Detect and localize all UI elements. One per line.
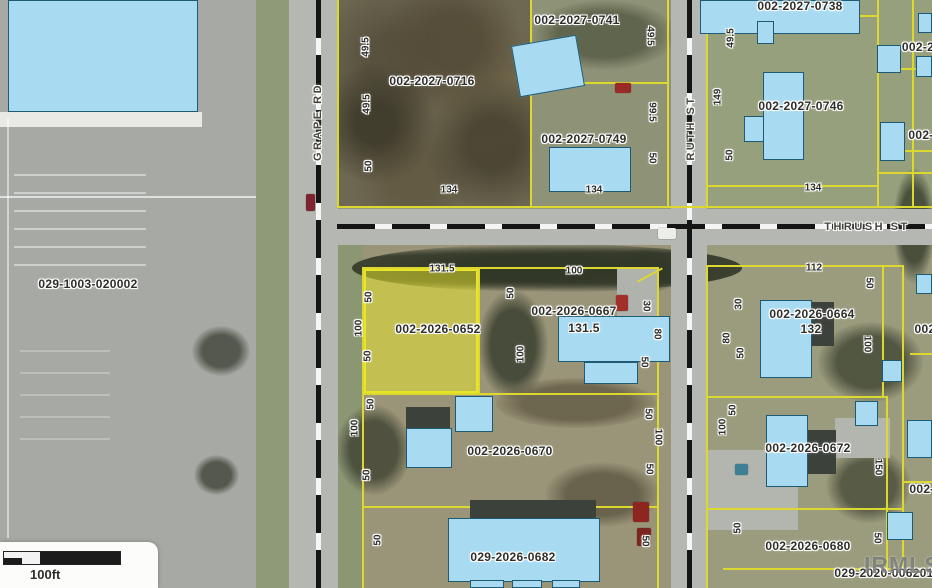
dimension-label: 50 [373, 534, 384, 545]
dimension-label: 50 [644, 463, 655, 474]
dimension-label: 49.5 [726, 28, 737, 47]
dimension-label: 50 [864, 277, 875, 288]
dimension-label: 100 [862, 336, 873, 353]
dimension-label: 50 [366, 398, 377, 409]
dimension-label: 49.5 [645, 26, 656, 45]
parcel-label[interactable]: 002-2027-0738 [757, 0, 842, 13]
tree-texture [336, 405, 411, 495]
vehicle [616, 295, 628, 311]
parcel-boundary-line [706, 396, 886, 398]
parcel-label[interactable]: 002-2026-0652 [395, 322, 480, 336]
street-label-thrush-st: THRUSH ST [824, 221, 909, 233]
building-footprint [877, 45, 901, 73]
building-footprint [916, 56, 932, 77]
dimension-label: 80 [652, 328, 663, 339]
parcel-label[interactable]: 131.5 [568, 321, 600, 335]
dimension-label: 50 [725, 149, 736, 160]
sidewalk-strip [0, 112, 202, 127]
tree-texture [496, 378, 656, 428]
parcel-label[interactable]: 002-2026-0680 [765, 539, 850, 553]
parcel-label[interactable]: 132 [801, 322, 822, 336]
dimension-label: 100 [354, 320, 365, 337]
dimension-label: 134 [586, 185, 603, 196]
building-footprint [763, 72, 804, 160]
dimension-label: 150 [873, 459, 884, 476]
parcel-label[interactable]: 002-2026-0667 [531, 304, 616, 318]
dimension-label: 30 [734, 298, 745, 309]
dimension-label: 100 [516, 346, 527, 363]
parcel-boundary-line [910, 353, 932, 355]
building-footprint [8, 0, 198, 112]
building-footprint [406, 428, 452, 468]
parcel-label[interactable]: 002-2026-0670 [467, 444, 552, 458]
parcel-label[interactable]: 002- [909, 482, 932, 496]
building-footprint [470, 580, 504, 588]
dimension-label: 50 [364, 160, 375, 171]
scale-label: 100ft [30, 567, 60, 582]
street-label-ruth-st: RUTH ST [685, 95, 697, 160]
parking-stripes-2 [20, 330, 110, 460]
dimension-label: 50 [736, 347, 747, 358]
building-footprint [552, 580, 580, 588]
dimension-label: 80 [722, 332, 733, 343]
parcel-label[interactable]: 002 [915, 322, 932, 336]
gis-parcel-map-canvas[interactable]: 100ft IRMLS 002-2027-0741002-2027-071600… [0, 0, 932, 588]
parcel-boundary-line [912, 0, 914, 208]
building-footprint [757, 21, 774, 44]
white-boundary-v [7, 118, 9, 538]
parcel-label[interactable]: 002-2026-0672 [765, 441, 850, 455]
parcel-boundary-line [362, 393, 658, 395]
dimension-label: 50 [728, 404, 739, 415]
vehicle [633, 502, 649, 522]
dimension-label: 50 [733, 522, 744, 533]
parcel-label[interactable]: 029-1003-020002 [38, 277, 137, 291]
dimension-label: 99.5 [647, 102, 658, 121]
parcel-boundary-line [337, 206, 932, 208]
building-footprint [887, 512, 913, 540]
tree-on-parking [192, 326, 250, 376]
dimension-label: 50 [872, 532, 883, 543]
dimension-label: 50 [506, 287, 517, 298]
dimension-label: 50 [364, 291, 375, 302]
parcel-label[interactable]: 002-2027-0716 [389, 74, 474, 88]
building-footprint [455, 396, 493, 432]
building-roof-dark [470, 500, 596, 518]
parcel-label[interactable]: 002-2027-0741 [534, 13, 619, 27]
parcel-label[interactable]: 002-2 [902, 40, 932, 54]
parcel-boundary-line [877, 172, 932, 174]
building-roof-dark [406, 407, 450, 429]
dimension-label: 131.5 [429, 264, 454, 275]
dimension-label: 50 [640, 535, 651, 546]
building-footprint [918, 13, 932, 33]
dimension-label: 50 [639, 356, 650, 367]
dimension-label: 30 [641, 300, 652, 311]
vehicle [306, 194, 315, 211]
parcel-label[interactable]: 002-2026-0664 [769, 307, 854, 321]
parcel-label[interactable]: 002-2027-0746 [758, 99, 843, 113]
vehicle [658, 228, 676, 239]
ruth-st-centerline [687, 0, 692, 588]
tree-on-parking [194, 455, 239, 495]
dimension-label: 50 [647, 152, 658, 163]
building-footprint [907, 420, 932, 458]
scale-panel: 100ft [0, 542, 158, 588]
dimension-label: 100 [350, 420, 361, 437]
dimension-label: 50 [643, 408, 654, 419]
dimension-label: 100 [566, 266, 583, 277]
parcel-boundary-line [530, 0, 532, 208]
dimension-label: 134 [441, 185, 458, 196]
parcel-boundary-line [706, 267, 708, 588]
white-boundary-h [0, 196, 294, 198]
parcel-boundary-line [706, 185, 877, 187]
dimension-label: 49.5 [362, 94, 373, 113]
building-footprint [855, 401, 878, 426]
parcel-label[interactable]: 029-2026-0682 [470, 550, 555, 564]
parking-stripes [14, 158, 146, 282]
scale-bar [3, 551, 121, 565]
building-footprint [512, 580, 542, 588]
building-footprint [744, 116, 764, 142]
parcel-boundary-line [706, 508, 904, 510]
building-footprint [584, 362, 638, 384]
building-footprint [882, 360, 902, 382]
dimension-label: 50 [363, 350, 374, 361]
vehicle [735, 464, 748, 475]
dimension-label: 49.5 [361, 37, 372, 56]
parcel-boundary-line [905, 150, 932, 152]
dimension-label: 50 [362, 469, 373, 480]
parcel-boundary-line [667, 0, 669, 208]
dimension-label: 134 [805, 183, 822, 194]
street-label-grape-rd: GRAPE RD [312, 83, 324, 161]
dimension-label: 112 [806, 263, 822, 274]
parcel-boundary-line [886, 396, 888, 570]
building-footprint [916, 274, 932, 294]
vehicle [615, 83, 631, 93]
parcel-label[interactable]: 002- [908, 128, 932, 142]
irmls-watermark: IRMLS [864, 552, 932, 579]
dimension-label: 149 [713, 89, 724, 106]
parcel-boundary-line [877, 0, 879, 208]
dimension-label: 100 [653, 429, 664, 446]
building-footprint [880, 122, 905, 161]
parcel-boundary-line [337, 0, 339, 208]
parcel-label[interactable]: 002-2027-0749 [541, 132, 626, 146]
dimension-label: 100 [718, 419, 729, 436]
